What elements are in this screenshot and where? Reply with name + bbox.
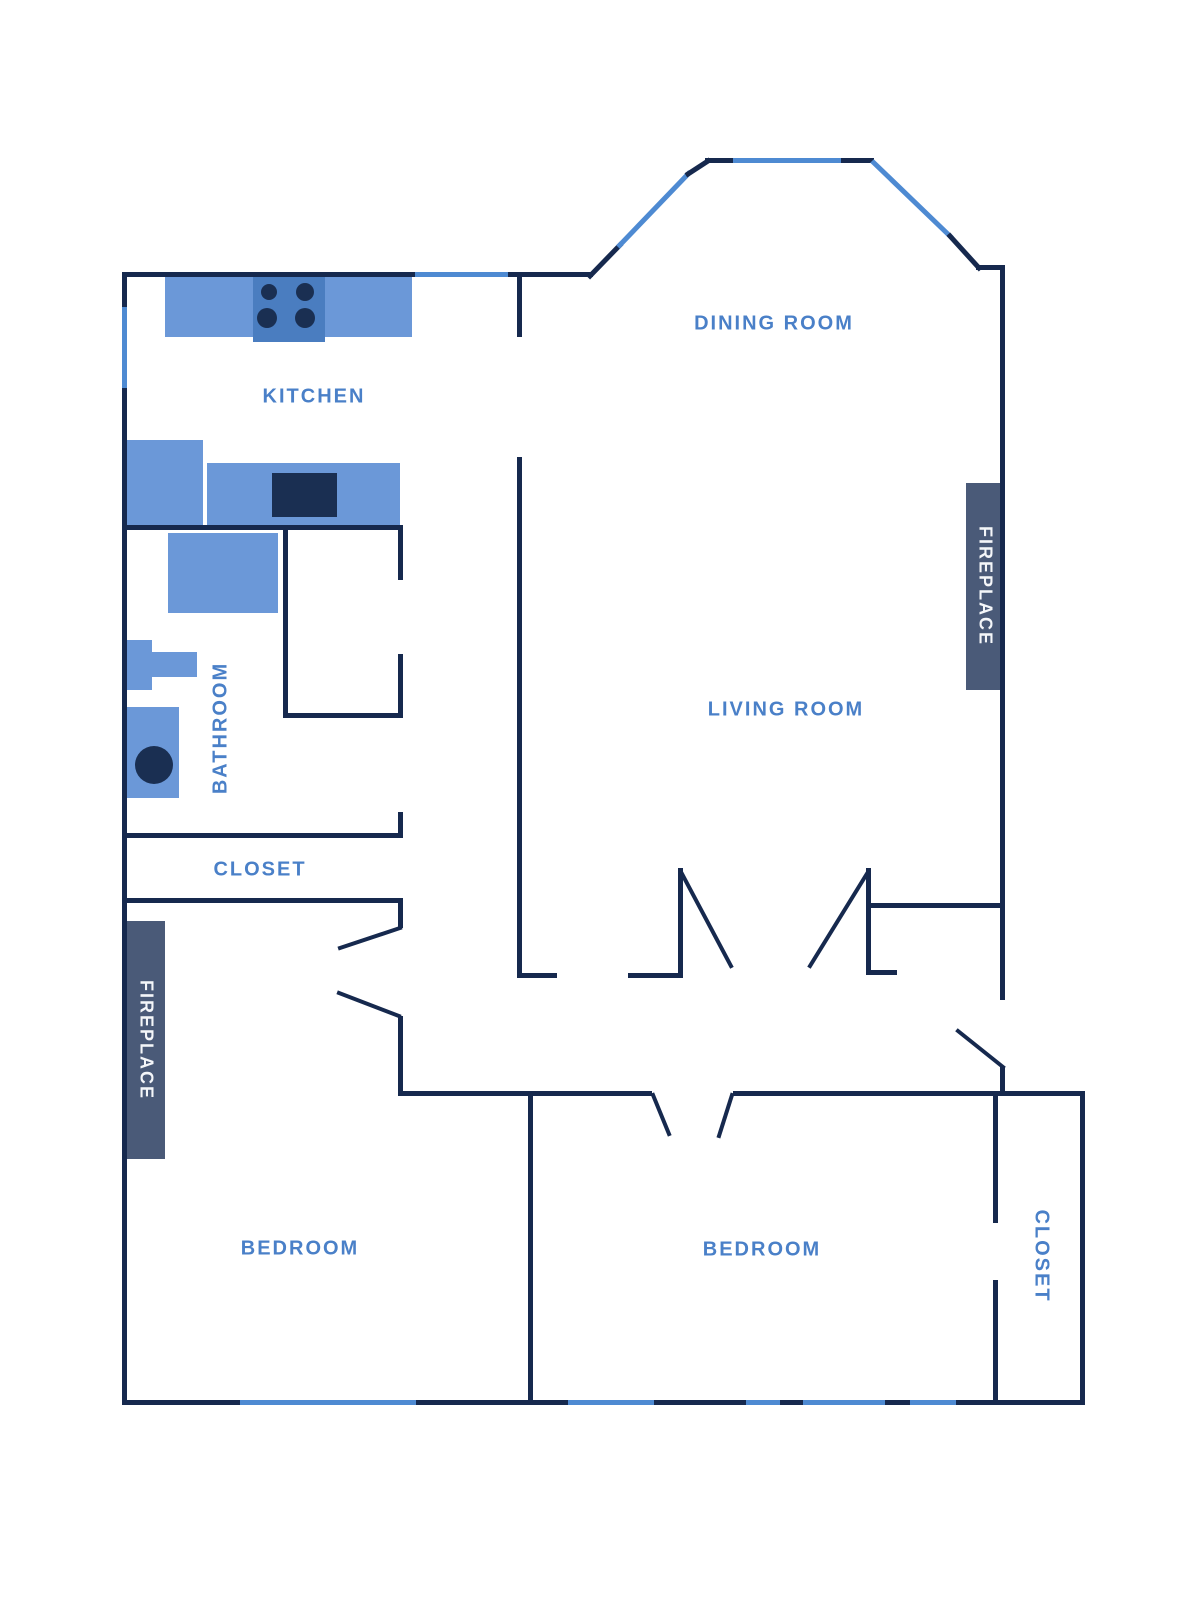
door-leaf [681, 872, 731, 966]
stove-burner-icon [261, 284, 277, 300]
floor-plan-drawing [0, 0, 1188, 1598]
kitchen-sink-icon [272, 473, 337, 517]
wall [398, 812, 403, 838]
closet-upper-label: CLOSET [213, 859, 306, 882]
wall [993, 1093, 998, 1223]
bedroom-right-label: BEDROOM [703, 1239, 821, 1262]
living-room-label: LIVING ROOM [708, 699, 864, 722]
wall [398, 898, 403, 928]
outer-walls [122, 158, 1085, 1405]
stove-burner-icon [257, 308, 277, 328]
wall [283, 713, 403, 718]
wall [1000, 265, 1005, 1000]
wall [780, 1400, 803, 1405]
doors [339, 872, 1003, 1136]
window [568, 1400, 654, 1405]
door-leaf [340, 928, 400, 948]
bathroom-label: BATHROOM [210, 662, 233, 794]
door-leaf [810, 872, 868, 966]
door-leaf [653, 1095, 669, 1134]
wall [122, 272, 415, 277]
wall [122, 525, 403, 530]
wall [283, 530, 288, 718]
wall [398, 530, 403, 580]
fireplace-left-label: FIREPLACE [136, 980, 157, 1100]
kitchen-label: KITCHEN [263, 386, 366, 409]
fireplace-right-label: FIREPLACE [975, 526, 996, 646]
wall [705, 158, 733, 163]
wall [122, 272, 127, 1405]
wall [993, 1280, 998, 1403]
wall [654, 1400, 746, 1405]
door-leaf [339, 993, 399, 1016]
wall [398, 1091, 652, 1096]
window [240, 1400, 416, 1405]
wall [885, 1400, 910, 1405]
wall [590, 245, 620, 276]
wall [122, 1400, 240, 1405]
wall [122, 898, 403, 903]
wall [950, 236, 979, 268]
wall [841, 158, 874, 163]
wall [866, 970, 897, 975]
bathroom-sink-basin-icon [135, 746, 173, 784]
window [803, 1400, 885, 1405]
stove-burner-icon [296, 283, 314, 301]
window [733, 158, 841, 163]
wall [1000, 1067, 1005, 1095]
wall [956, 1400, 1085, 1405]
window [415, 272, 508, 277]
toilet-tank-icon [127, 640, 152, 690]
bedroom-left-label: BEDROOM [241, 1238, 359, 1261]
dining-room-label: DINING ROOM [694, 313, 854, 336]
closet-right-label: CLOSET [1030, 1209, 1053, 1302]
wall [398, 1016, 403, 1096]
window [910, 1400, 956, 1405]
wall [628, 973, 683, 978]
wall [122, 833, 403, 838]
wall [398, 654, 403, 715]
bathroom-fixtures [126, 533, 278, 798]
entry-door-leaf [958, 1031, 1003, 1067]
window [746, 1400, 780, 1405]
wall [866, 868, 871, 975]
window [122, 307, 127, 388]
wall [678, 868, 683, 978]
wall [528, 1093, 533, 1403]
floor-plan: KITCHEN DINING ROOM LIVING ROOM BATHROOM… [0, 0, 1188, 1598]
wall [517, 973, 557, 978]
refrigerator-icon [127, 440, 203, 525]
wall [733, 1091, 1083, 1096]
wall [517, 457, 522, 975]
window [618, 172, 690, 247]
shower-icon [168, 533, 278, 613]
door-leaf [719, 1095, 732, 1136]
wall [1080, 1091, 1085, 1405]
wall [866, 903, 1005, 908]
wall [416, 1400, 568, 1405]
window [872, 161, 952, 238]
wall [517, 275, 522, 337]
interior-walls [122, 275, 1005, 1403]
toilet-bowl-icon [152, 652, 197, 677]
stove-burner-icon [295, 308, 315, 328]
